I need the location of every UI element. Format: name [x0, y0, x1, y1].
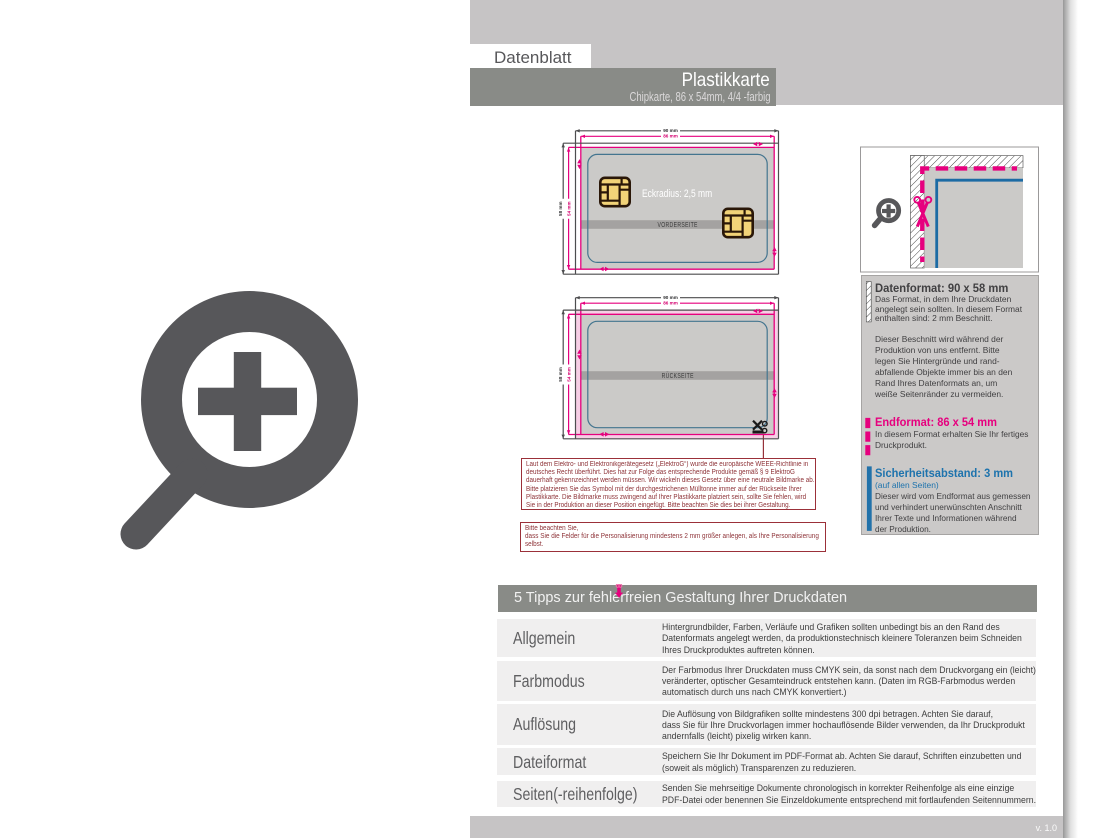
svg-text:54 mm: 54 mm — [567, 367, 572, 382]
svg-text:90 mm: 90 mm — [663, 295, 678, 300]
svg-text:86 mm: 86 mm — [663, 300, 678, 305]
svg-text:86 mm: 86 mm — [663, 134, 678, 139]
svg-text:54 mm: 54 mm — [567, 201, 572, 216]
svg-text:58 mm: 58 mm — [558, 201, 563, 216]
svg-text:90 mm: 90 mm — [663, 128, 678, 133]
svg-text:58 mm: 58 mm — [558, 367, 563, 382]
